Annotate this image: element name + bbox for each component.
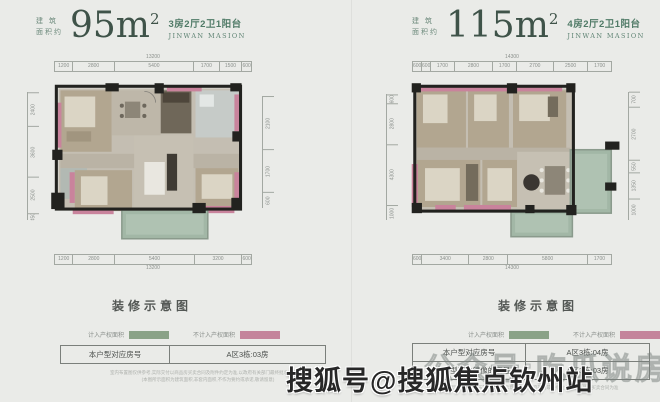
dim-label: 2100 (263, 96, 274, 149)
dim-segments: 600 3400 2800 5800 1700 (412, 254, 612, 265)
dim-label: 1200 (54, 62, 73, 71)
dim-label: 600 (412, 255, 422, 264)
dim-label: 450 (28, 213, 39, 220)
dim-total-label: 14300 (412, 54, 612, 61)
unit-panel-115: 建 筑 面积约 115m2 4房2厅2卫1阳台 JINWAN MASION 14… (352, 0, 660, 402)
dim-label: 1700 (588, 62, 612, 71)
legend-swatch-green (509, 331, 549, 339)
room-spec: 4房2厅2卫1阳台 (567, 16, 644, 30)
dim-label: 700 (629, 92, 640, 107)
dim-label: 1700 (431, 62, 455, 71)
dim-label: 1500 (220, 62, 243, 71)
legend-label-included: 计入产权面积 (88, 330, 124, 339)
dim-label: 1700 (588, 255, 612, 264)
unit-spec: 4房2厅2卫1阳台 JINWAN MASION (567, 16, 644, 40)
dim-label: 600 (263, 192, 274, 208)
dims-left-115: 600 2800 4300 1000 (386, 94, 398, 220)
dims-bottom-95: 1200 2800 5400 3200 600 13200 (54, 254, 252, 272)
dim-label: 600 (242, 62, 252, 71)
dims-left-95: 2400 3600 2500 450 (27, 92, 39, 220)
dim-label: 1200 (54, 255, 73, 264)
brand-name: JINWAN MASION (169, 32, 246, 40)
floor-plan-115 (404, 74, 620, 250)
brand-name: JINWAN MASION (567, 32, 644, 40)
dim-label: 2800 (469, 255, 508, 264)
dim-label: 4300 (387, 144, 398, 205)
area-value: 115m2 (446, 8, 558, 44)
dim-label: 600 (387, 94, 398, 103)
dim-label: 600 (422, 62, 431, 71)
dim-label: 2500 (28, 177, 39, 213)
dim-segments: 600 600 1700 2800 1700 2700 2500 1700 (412, 61, 612, 72)
decoration-title: 装修示意图 (498, 297, 578, 314)
room-spec: 3房2厅2卫1阳台 (169, 16, 246, 30)
dim-label: 3200 (195, 255, 243, 264)
legend-swatch-pink (620, 331, 660, 339)
dim-label: 1700 (263, 149, 274, 192)
dim-label: 1700 (194, 62, 220, 71)
dim-label: 1350 (629, 172, 640, 199)
legend-swatch-pink (240, 331, 280, 339)
dim-segments: 1200 2800 5400 3200 600 (54, 254, 252, 265)
legend-label-included: 计入产权面积 (468, 330, 504, 339)
dim-label: 600 (242, 255, 252, 264)
unit-spec: 3房2厅2卫1阳台 JINWAN MASION (169, 16, 246, 40)
dim-label: 2800 (73, 62, 115, 71)
dim-label: 2700 (517, 62, 554, 71)
unit-panel-95: 建 筑 面积约 95m2 3房2厅2卫1阳台 JINWAN MASION 132… (0, 0, 330, 402)
dims-right-95: 2100 1700 600 (262, 96, 274, 208)
dims-right-115: 700 2700 550 1350 1000 (628, 92, 640, 220)
dim-label: 1000 (387, 205, 398, 220)
dim-total-label: 13200 (54, 265, 252, 272)
dim-total-label: 13200 (54, 54, 252, 61)
dim-label: 3400 (422, 255, 469, 264)
unit-header-115: 建 筑 面积约 115m2 4房2厅2卫1阳台 JINWAN MASION (412, 8, 645, 44)
area-label: 建 筑 面积约 (36, 16, 63, 38)
unit-header-95: 建 筑 面积约 95m2 3房2厅2卫1阳台 JINWAN MASION (36, 8, 246, 44)
legend-95: 计入产权面积 不计入产权面积 (88, 330, 280, 339)
area-label: 建 筑 面积约 (412, 16, 439, 38)
dim-label: 2700 (629, 107, 640, 161)
dim-label: 2800 (387, 103, 398, 143)
dim-label: 3600 (28, 126, 39, 177)
dim-label: 2800 (73, 255, 115, 264)
dim-label: 2400 (28, 92, 39, 126)
legend-115: 计入产权面积 不计入产权面积 (468, 330, 660, 339)
dim-label: 5800 (508, 255, 588, 264)
legend-swatch-green (129, 331, 169, 339)
dim-label: 2800 (455, 62, 493, 71)
area-value: 95m2 (70, 8, 160, 44)
dim-label: 5400 (115, 255, 195, 264)
dim-label: 1700 (493, 62, 517, 71)
watermark-bold: 搜狐号@搜狐焦点钦州站 (286, 359, 593, 398)
legend-label-excluded: 不计入产权面积 (573, 330, 615, 339)
dim-label: 2500 (554, 62, 588, 71)
dim-label: 5400 (115, 62, 194, 71)
dims-top-95: 13200 1200 2800 5400 1700 1500 600 (54, 54, 252, 72)
dim-label: 550 (629, 160, 640, 172)
dim-segments: 1200 2800 5400 1700 1500 600 (54, 61, 252, 72)
dim-label: 1000 (629, 199, 640, 220)
table-row-label: 本户型对应房号 (61, 346, 170, 364)
decoration-title: 装修示意图 (112, 297, 192, 314)
dim-total-label: 14300 (412, 265, 612, 272)
floor-plan-95 (46, 74, 256, 250)
legend-label-excluded: 不计入产权面积 (193, 330, 235, 339)
dims-bottom-115: 600 3400 2800 5800 1700 14300 (412, 254, 612, 272)
dim-label: 600 (412, 62, 422, 71)
dims-top-115: 14300 600 600 1700 2800 1700 2700 2500 1… (412, 54, 612, 72)
